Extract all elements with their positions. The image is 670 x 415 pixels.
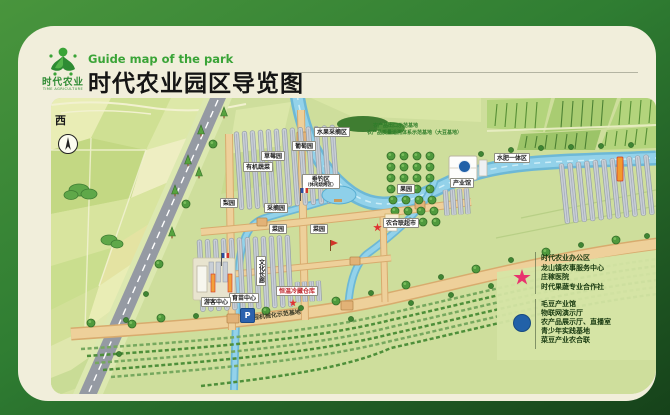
organic-vegetable-label: 有机蔬菜 — [243, 162, 273, 172]
legend-star-items: 时代农业办公区 龙山镇农事服务中心 庄稼医院 时代果蔬专业合作社 — [541, 254, 604, 292]
brand-name-en: TIME AGRICULTURE — [38, 87, 88, 92]
strawberry-field-label: 草莓园 — [261, 151, 285, 161]
legend-circle-items: 毛豆产业馆 物联网演示厅 农产品展示厅、直播室 青少年实践基地 菜豆产业农合联 — [541, 300, 611, 345]
header-rule — [294, 72, 638, 73]
brand-logo-icon — [43, 44, 83, 78]
tricolor-flag-icon-1 — [301, 188, 308, 193]
pear-orchard-label: 梨园 — [220, 198, 238, 208]
red-flag-icon — [331, 240, 338, 246]
fishing-area-subtitle: （休闲烧烤区） — [305, 183, 337, 188]
legend-item: 青少年实践基地 — [541, 327, 611, 336]
vegetable-plot-label-1: 菜园 — [269, 224, 287, 234]
fishing-area-title: 垂钓区 — [305, 176, 337, 183]
legend-circle-icon — [513, 314, 531, 332]
culture-corridor-label: 文化长廊 — [256, 256, 266, 286]
brand-logo: 时代农业 TIME AGRICULTURE — [38, 44, 88, 98]
fruit-picking-area-label: 水果采摘区 — [314, 127, 350, 137]
map-illustration — [51, 98, 656, 394]
vegetable-plot-label-2: 菜园 — [310, 224, 328, 234]
parking-sign: P — [240, 308, 255, 323]
legend-item: 毛豆产业馆 — [541, 300, 611, 309]
water-fertilizer-zone-label: 水肥一体区 — [494, 153, 530, 163]
legend-item: 物联网演示厅 — [541, 309, 611, 318]
coop-supermarket-label: 农合联超市 — [383, 218, 419, 228]
page-title: 时代农业园区导览图 — [88, 64, 304, 98]
legend-star-divider — [535, 252, 536, 294]
brand-name-cn: 时代农业 — [38, 78, 88, 87]
legend-item: 时代农业办公区 — [541, 254, 604, 264]
legend-item: 庄稼医院 — [541, 273, 604, 283]
legend-item: 时代果蔬专业合作社 — [541, 283, 604, 293]
legend-circle-divider — [535, 299, 536, 349]
tricolor-flag-icon-2 — [222, 253, 229, 258]
map-card: 时代农业 TIME AGRICULTURE Guide map of the p… — [18, 26, 656, 401]
park-map: 西 草莓园 葡萄园 水果采摘区 有机蔬菜 垂钓区 （休闲烧烤区） 采摘园 梨园 … — [51, 98, 656, 394]
fishing-area-label: 垂钓区 （休闲烧烤区） — [302, 174, 340, 189]
pavilion-blue-marker — [458, 160, 471, 173]
legend-item: 农产品展示厅、直播室 — [541, 318, 611, 327]
export-base-label: 农产品出口示范基地 — [373, 123, 418, 129]
industry-hall-label: 产业馆 — [450, 178, 474, 188]
legend-item: 龙山镇农事服务中心 — [541, 264, 604, 274]
traceability-base-label: 农产品质量追溯体系示范基地（大豆基地） — [367, 130, 462, 136]
picking-garden-label: 采摘园 — [264, 203, 288, 213]
compass-west-label: 西 — [55, 112, 66, 128]
compass-icon — [58, 134, 78, 154]
grape-field-label: 葡萄园 — [292, 141, 316, 151]
orchard-label: 果园 — [397, 184, 415, 194]
legend-item: 菜豆产业农合联 — [541, 336, 611, 345]
cold-storage-label: 恒温冷藏仓库 — [276, 286, 318, 296]
visitor-center-label: 游客中心 — [201, 297, 231, 307]
seedling-center-label: 育苗中心 — [229, 293, 259, 303]
